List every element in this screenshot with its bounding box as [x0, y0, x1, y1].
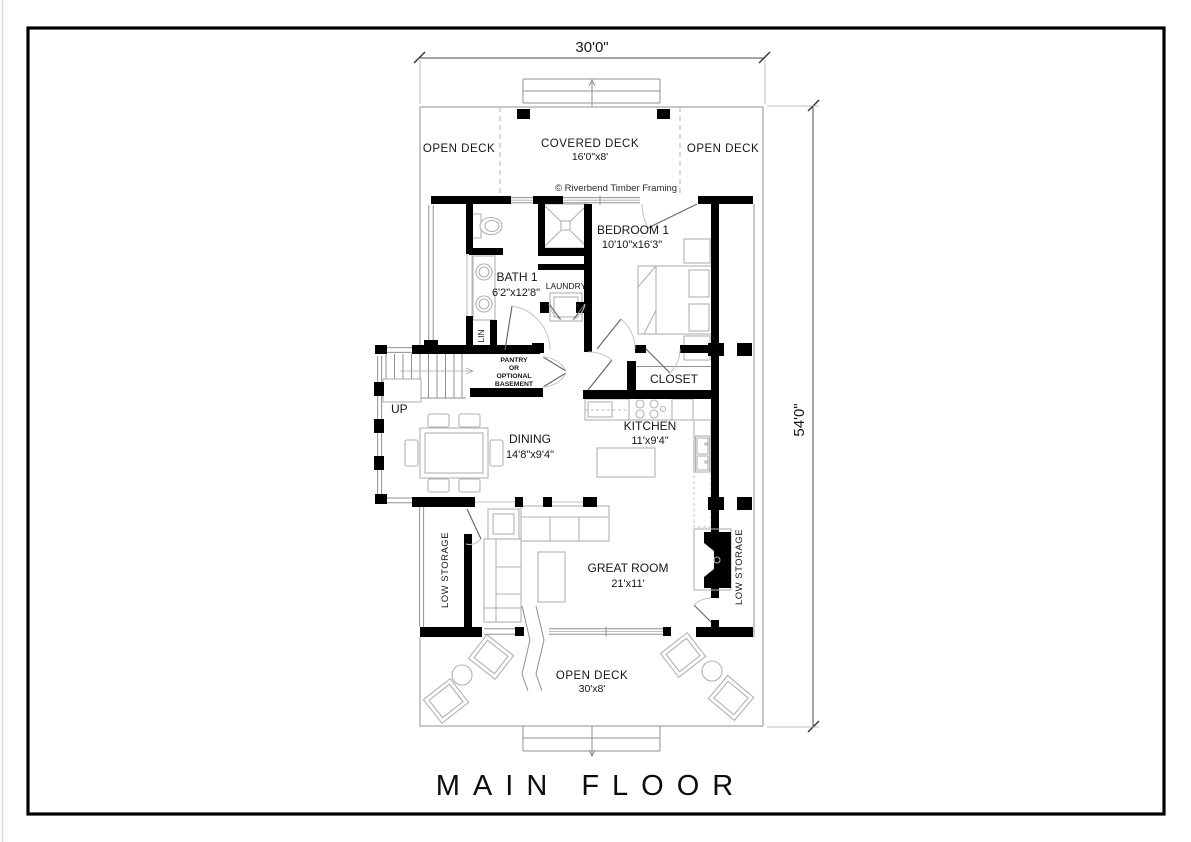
overall-width-dimension: 30'0" [575, 39, 608, 56]
nightstand-top [684, 239, 710, 263]
bedroom1-label: BEDROOM 1 [597, 223, 669, 237]
kitchen-sink [696, 436, 710, 472]
deck-side-table-left [452, 665, 472, 685]
shower [543, 204, 588, 248]
stove [629, 397, 672, 420]
linen-closet-label: LIN [476, 329, 486, 342]
closet-door [646, 349, 680, 373]
dining-table-set [405, 414, 503, 492]
dining-label: DINING [509, 432, 551, 446]
fireplace [694, 529, 731, 590]
bifold-patio-doors [522, 606, 544, 691]
covered-deck-label: COVERED DECK [541, 138, 639, 150]
deck-post-right [657, 109, 670, 119]
closet-label: CLOSET [650, 372, 699, 386]
pantry-doors [543, 357, 566, 387]
sectional-sofa [484, 539, 521, 622]
pantry-label-line3: OPTIONAL [496, 373, 531, 380]
low-storage-left-outer-wall [420, 507, 424, 627]
great-room-size: 21'x11' [611, 578, 644, 590]
open-deck-top-right-label: OPEN DECK [687, 143, 759, 155]
window-left-wall-upper [429, 205, 433, 340]
deck-armchair-4 [708, 676, 753, 721]
kitchen-size: 11'x9'4" [631, 435, 668, 447]
dining-size: 14'8"x9'4" [506, 449, 554, 461]
open-deck-bottom-label: OPEN DECK [556, 670, 628, 682]
pantry-label-line1: PANTRY [500, 357, 528, 364]
open-deck-top-left-label: OPEN DECK [423, 143, 495, 155]
open-deck-bottom-size: 30'x8' [579, 683, 606, 695]
window-bottom-wall-1 [484, 629, 515, 634]
bay-window-bottom [387, 498, 412, 503]
deck-side-table-right [702, 661, 722, 681]
great-room-label: GREAT ROOM [588, 561, 669, 575]
toilet [471, 214, 502, 238]
covered-deck-size: 16'0"x8' [572, 151, 608, 163]
overall-depth-dimension: 54'0" [791, 403, 808, 436]
low-storage-left-label: LOW STORAGE [440, 532, 451, 608]
copyright-notice: © Riverbend Timber Framing [555, 183, 677, 194]
bath1-size: 6'2"x12'8" [492, 287, 540, 299]
bedroom-door [597, 319, 635, 349]
floor-plan-page: 30'0" 54'0" [0, 0, 1191, 842]
sofa [521, 506, 609, 541]
deck-post-left [517, 109, 530, 119]
deck-armchair-1 [468, 635, 513, 680]
great-room-deck-door [694, 598, 711, 622]
drawing-title: MAIN FLOOR [436, 770, 746, 802]
window-top-wall-1 [511, 198, 533, 203]
floor-plan-canvas: 30'0" 54'0" [0, 0, 1191, 842]
laundry-label: LAUNDRY [546, 281, 587, 291]
pantry-label-line4: BASEMENT [495, 381, 534, 388]
armchair-corner [488, 509, 519, 539]
right-dimension: 54'0" [767, 100, 819, 732]
deck-armchair-3 [660, 633, 705, 678]
bath1-label: BATH 1 [496, 270, 537, 284]
bay-window-top [387, 348, 412, 353]
pantry-label-line2: OR [509, 365, 519, 372]
bottom-deck-steps [523, 726, 660, 756]
staircase [383, 354, 473, 402]
kitchen-label: KITCHEN [624, 419, 677, 433]
kitchen-entry-door [588, 352, 612, 390]
top-deck-steps [523, 79, 660, 106]
kitchen-island [597, 448, 655, 477]
stairs-up-label: UP [391, 402, 408, 416]
bedroom1-size: 10'10"x16'3" [602, 239, 662, 251]
window-bottom-wall-2 [549, 627, 663, 637]
coffee-table [538, 552, 565, 602]
low-storage-right-label: LOW STORAGE [734, 529, 745, 605]
bed [638, 266, 712, 334]
